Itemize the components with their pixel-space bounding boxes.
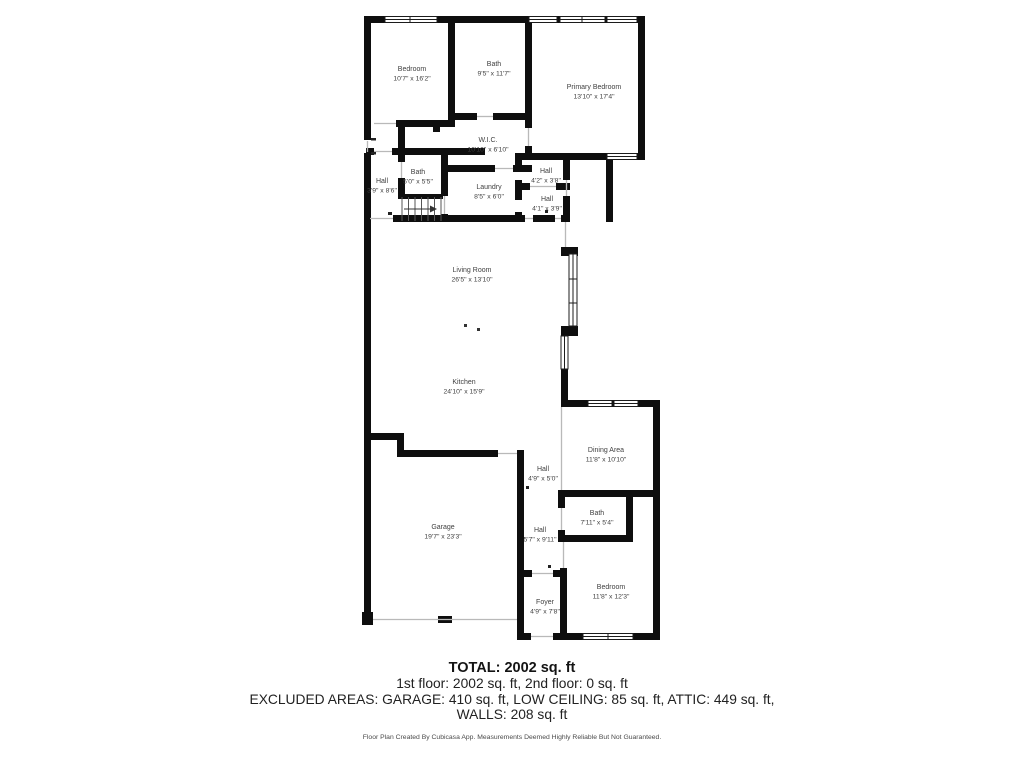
room-label-bath-top: Bath9'5" x 11'7" — [478, 61, 512, 78]
room-label-bath-mid: Bath5'0" x 5'5" — [403, 169, 433, 186]
room-label-kitchen: Kitchen24'10" x 15'9" — [443, 379, 485, 396]
room-label-bath-lower: Bath7'11" x 5'4" — [581, 510, 615, 527]
window-mullions — [385, 17, 638, 637]
room-label-garage: Garage19'7" x 23'3" — [424, 524, 462, 541]
room-label-hall-57: Hall5'7" x 9'11" — [524, 527, 558, 544]
disclaimer-text: Floor Plan Created By Cubicasa App. Meas… — [0, 733, 1024, 742]
room-label-primary-bedroom: Primary Bedroom13'10" x 17'4" — [567, 84, 622, 101]
room-label-hall-49: Hall4'9" x 5'0" — [528, 466, 558, 483]
room-label-bedroom-top: Bedroom10'7" x 16'2" — [393, 66, 431, 83]
walls-area-text: WALLS: 208 sq. ft — [0, 707, 1024, 723]
room-label-hall-upper-left: Hall3'9" x 8'6" — [367, 178, 397, 195]
area-summary: TOTAL: 2002 sq. ft 1st floor: 2002 sq. f… — [0, 660, 1024, 742]
windows — [385, 17, 638, 640]
room-label-bedroom-lower: Bedroom11'8" x 12'3" — [593, 584, 630, 601]
door-openings — [368, 117, 567, 637]
room-label-wic: W.I.C.10'10" x 6'10" — [467, 137, 509, 154]
room-label-foyer: Foyer4'9" x 7'8" — [530, 599, 560, 616]
floor-plan: Bedroom10'7" x 16'2"Bath9'5" x 11'7"Prim… — [0, 0, 1024, 768]
floor-plan-page: Bedroom10'7" x 16'2"Bath9'5" x 11'7"Prim… — [0, 0, 1024, 768]
room-label-living-room: Living Room26'5" x 13'10" — [451, 267, 493, 284]
total-area-text: TOTAL: 2002 sq. ft — [0, 660, 1024, 676]
room-label-hall-42: Hall4'2" x 3'8" — [531, 168, 561, 185]
room-label-dining-area: Dining Area11'8" x 10'10" — [586, 447, 627, 464]
excluded-areas-text: EXCLUDED AREAS: GARAGE: 410 sq. ft, LOW … — [0, 692, 1024, 708]
walls — [362, 16, 660, 640]
room-label-hall-41: Hall4'1" x 3'9" — [532, 196, 562, 213]
room-labels: Bedroom10'7" x 16'2"Bath9'5" x 11'7"Prim… — [367, 61, 630, 616]
floor-areas-text: 1st floor: 2002 sq. ft, 2nd floor: 0 sq.… — [0, 676, 1024, 692]
room-label-laundry: Laundry8'5" x 6'0" — [474, 184, 504, 201]
